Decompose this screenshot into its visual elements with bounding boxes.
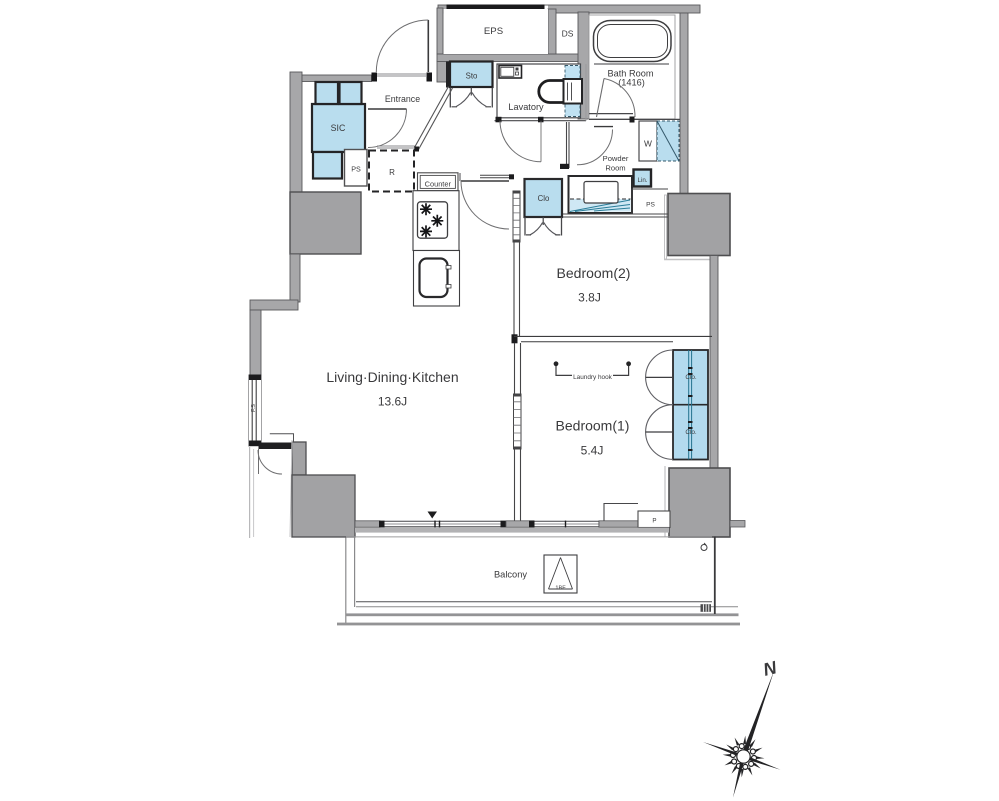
svg-text:Lavatory: Lavatory [508, 102, 544, 112]
svg-text:Bedroom(2): Bedroom(2) [557, 265, 631, 281]
svg-text:Clo.: Clo. [685, 374, 697, 381]
svg-text:(1416): (1416) [618, 78, 645, 88]
svg-text:PS: PS [646, 202, 655, 209]
svg-text:SIC: SIC [331, 123, 346, 133]
svg-text:5.4J: 5.4J [581, 444, 604, 458]
svg-text:13.6J: 13.6J [378, 395, 407, 409]
svg-text:EPS: EPS [484, 26, 503, 37]
svg-text:W: W [644, 139, 652, 149]
svg-text:Counter: Counter [425, 180, 452, 189]
svg-text:3.8J: 3.8J [578, 291, 601, 305]
svg-text:DS: DS [562, 29, 574, 39]
svg-text:Bedroom(1): Bedroom(1) [556, 418, 630, 434]
svg-text:Sto: Sto [466, 72, 478, 81]
svg-text:Clo: Clo [538, 194, 550, 203]
svg-text:R: R [389, 168, 395, 177]
svg-text:Entrance: Entrance [385, 94, 420, 104]
svg-text:Living·Dining·Kitchen: Living·Dining·Kitchen [326, 369, 458, 385]
svg-text:Room: Room [605, 164, 625, 173]
svg-text:F.S: F.S [251, 404, 257, 412]
svg-text:Powder: Powder [603, 154, 629, 163]
svg-text:Balcony: Balcony [494, 570, 527, 580]
svg-text:P: P [652, 518, 656, 525]
svg-text:1BF: 1BF [555, 586, 566, 592]
svg-text:Clo.: Clo. [685, 429, 697, 436]
svg-text:Laundry hook: Laundry hook [573, 374, 613, 381]
svg-text:Lin.: Lin. [638, 177, 648, 184]
svg-text:PS: PS [351, 165, 361, 174]
